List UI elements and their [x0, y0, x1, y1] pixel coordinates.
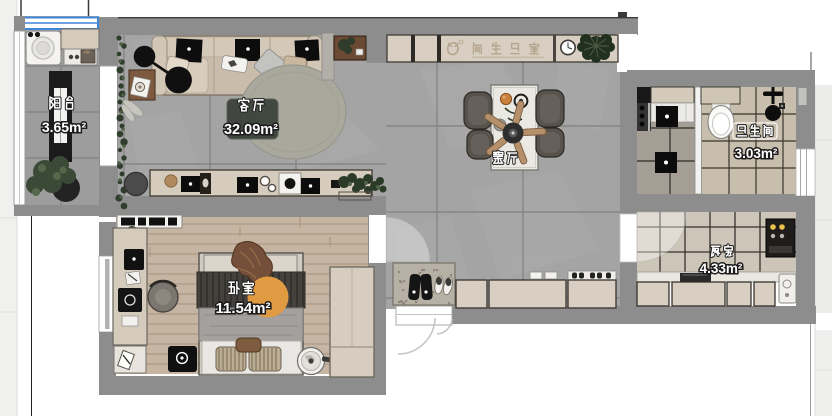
svg-text:4.33m²: 4.33m² [700, 261, 743, 276]
svg-text:3.03m²: 3.03m² [735, 146, 778, 161]
svg-text:3.65m²: 3.65m² [42, 119, 87, 135]
svg-text:11.54m²: 11.54m² [215, 300, 270, 317]
svg-text:32.09m²: 32.09m² [224, 122, 278, 138]
